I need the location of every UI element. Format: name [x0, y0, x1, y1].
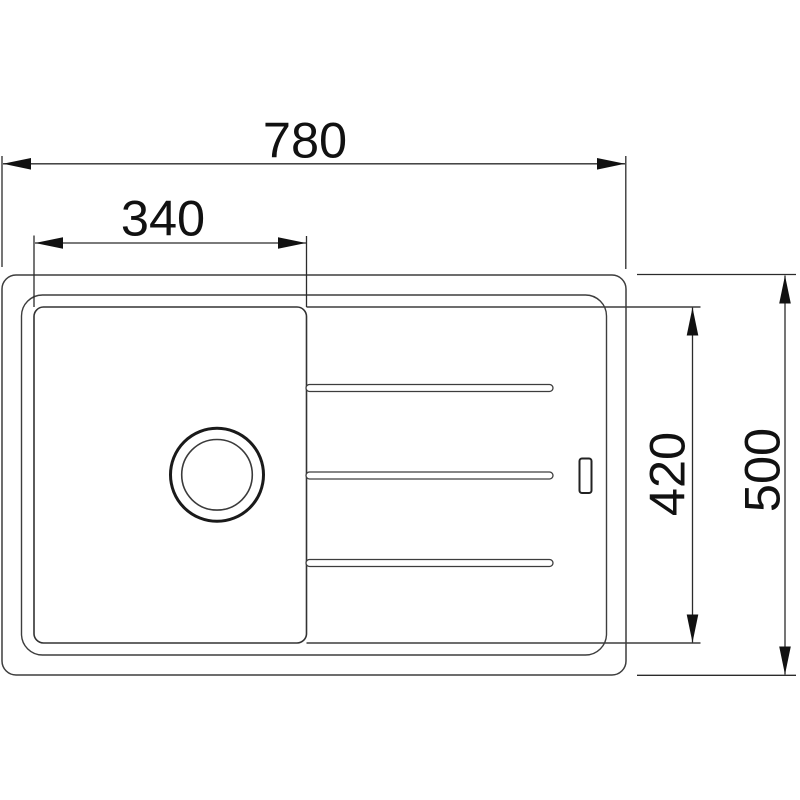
svg-text:340: 340	[121, 190, 205, 247]
svg-text:780: 780	[263, 112, 347, 169]
svg-text:420: 420	[639, 432, 696, 516]
svg-text:500: 500	[734, 428, 791, 512]
